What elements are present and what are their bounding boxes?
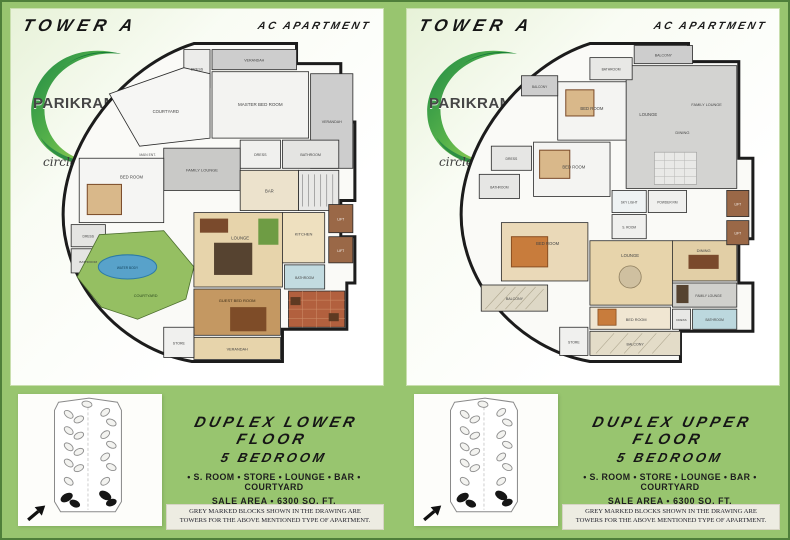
room-label: BED ROOM	[120, 174, 143, 179]
room-label: LIFT	[735, 232, 742, 236]
room-label: DRESS	[506, 157, 518, 161]
room-label: BED ROOM	[536, 241, 559, 246]
room-label: GUEST BED ROOM	[219, 298, 256, 303]
room-label: DRESS	[191, 68, 204, 72]
floor-title: DUPLEX UPPER FLOOR	[558, 414, 782, 448]
panel-footer-upper: DUPLEX UPPER FLOOR 5 BEDROOM • S. ROOM •…	[406, 390, 780, 532]
sofa-set	[676, 285, 688, 303]
features-line: • S. ROOM • STORE • LOUNGE • BAR • COURT…	[166, 472, 382, 492]
bed-furniture	[566, 90, 594, 116]
room-label: POWDER RM	[657, 201, 678, 205]
room-label: LOUNGE	[231, 236, 249, 241]
caption-block: DUPLEX UPPER FLOOR 5 BEDROOM • S. ROOM •…	[562, 414, 778, 506]
room-label: LOUNGE	[639, 112, 657, 117]
disclaimer-bar: GREY MARKED BLOCKS SHOWN IN THE DRAWING …	[562, 504, 780, 530]
room-label: FAMILY LOUNGE	[695, 294, 722, 298]
panel-duplex-lower: TOWER A AC APARTMENT PARIKRAMA circle of…	[10, 8, 384, 532]
room-label: LIFT	[735, 203, 742, 207]
dining-table	[200, 219, 228, 233]
room-label: WATER BODY	[117, 266, 139, 270]
bed-furniture	[598, 309, 616, 325]
room-label: DRESS	[83, 235, 95, 239]
brochure-page: { "colors": { "page_green": "#98c56f", "…	[0, 0, 790, 540]
room-label: MASTER BED ROOM	[238, 102, 283, 107]
room-label: COURTYARD	[134, 294, 158, 298]
panel-duplex-upper: TOWER A AC APARTMENT PARIKRAMA circle of…	[406, 8, 780, 532]
rug	[258, 219, 278, 245]
floor-plan-lower: DRESS VERANDAH MASTER BED ROOM VERANDAH …	[43, 29, 375, 377]
room-label: STORE	[173, 341, 186, 345]
bed-furniture	[230, 307, 266, 331]
north-arrow-icon	[25, 501, 49, 524]
room-label: BALCONY	[532, 85, 548, 89]
room-label: DRESS	[254, 153, 267, 157]
keyplan-drawing	[414, 394, 558, 526]
floor-plan-upper: BALCONY BATHROOM BED ROOM BALCONY LOUNGE…	[439, 29, 771, 377]
north-arrow-icon	[421, 501, 445, 524]
caption-block: DUPLEX LOWER FLOOR 5 BEDROOM • S. ROOM •…	[166, 414, 382, 506]
room-label: BAR	[265, 188, 274, 193]
room-label: BED ROOM	[580, 106, 603, 111]
room-label: MAIN ENT.	[139, 153, 155, 157]
keyplan-card	[414, 394, 558, 526]
room-label: VERANDAH	[322, 120, 342, 124]
room-label: BED ROOM	[626, 318, 647, 322]
room-label: SKY LIGHT	[621, 201, 638, 205]
plan-card-upper: TOWER A AC APARTMENT PARIKRAMA circle of…	[406, 8, 780, 386]
room-label: DRESS	[676, 318, 686, 322]
room-label: BALCONY	[655, 54, 673, 58]
room-label: LOUNGE	[621, 253, 639, 258]
room-label: DINING	[697, 248, 711, 253]
room-label: COURTYARD	[153, 109, 179, 114]
room-label: LIFT	[337, 249, 344, 253]
bed-furniture	[87, 184, 121, 214]
room-label: FAMILY LOUNGE	[691, 103, 722, 107]
room-label: BATHROOM	[79, 260, 97, 264]
sofa-set	[214, 243, 252, 275]
room-label: VERANDAH	[227, 347, 248, 351]
room-label: BALCONY	[506, 297, 524, 301]
room-label: S. ROOM	[622, 226, 636, 230]
features-line: • S. ROOM • STORE • LOUNGE • BAR • COURT…	[562, 472, 778, 492]
plan-card-lower: TOWER A AC APARTMENT PARIKRAMA circle of…	[10, 8, 384, 386]
panel-footer-lower: DUPLEX LOWER FLOOR 5 BEDROOM • S. ROOM •…	[10, 390, 384, 532]
room-label: BATHROOM	[602, 68, 621, 72]
room-label: LIFT	[337, 218, 344, 222]
round-rug	[619, 266, 641, 288]
room-label: DINING	[675, 130, 689, 135]
room-label: BALCONY	[627, 342, 645, 346]
keyplan-drawing	[18, 394, 162, 526]
dining-table	[689, 255, 719, 269]
room-label: BED ROOM	[562, 164, 585, 169]
bedroom-count: 5 BEDROOM	[560, 450, 780, 465]
room-label: FAMILY LOUNGE	[186, 167, 218, 172]
room-label: BATHROOM	[706, 318, 725, 322]
keyplan-card	[18, 394, 162, 526]
bedroom-count: 5 BEDROOM	[164, 450, 384, 465]
room-label: KITCHEN	[295, 232, 313, 237]
floor-title: DUPLEX LOWER FLOOR	[162, 414, 386, 448]
room-label: BATHROOM	[490, 185, 509, 189]
disclaimer-bar: GREY MARKED BLOCKS SHOWN IN THE DRAWING …	[166, 504, 384, 530]
room-label: BATHROOM	[295, 276, 314, 280]
room-label: STORE	[568, 340, 580, 344]
room-label: BATHROOM	[300, 153, 321, 157]
room-label: VERANDAH	[244, 59, 264, 63]
